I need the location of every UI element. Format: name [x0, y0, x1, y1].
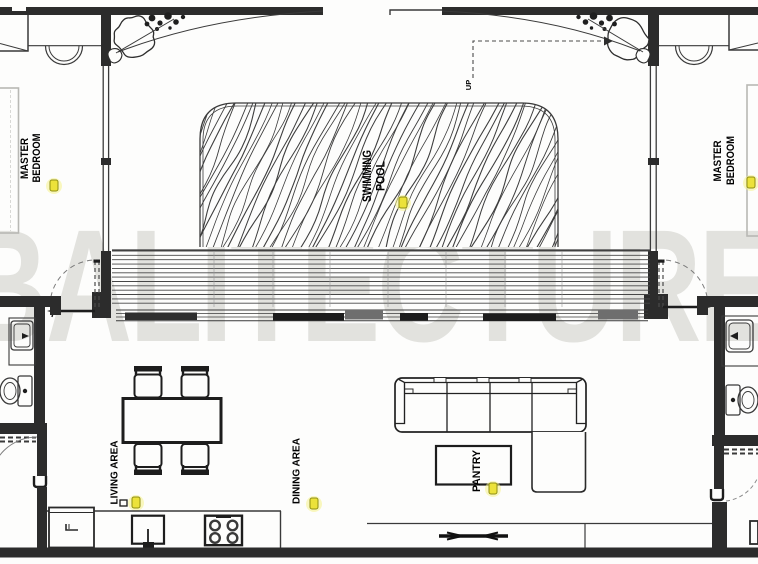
svg-text:PANTRY: PANTRY [471, 449, 483, 492]
svg-text:UP: UP [464, 80, 473, 90]
svg-text:POOL: POOL [376, 161, 388, 191]
svg-text:MASTER: MASTER [712, 140, 724, 181]
svg-text:SWIMMING: SWIMMING [362, 150, 374, 202]
svg-text:BEDROOM: BEDROOM [31, 134, 43, 183]
svg-text:BEDROOM: BEDROOM [725, 136, 737, 185]
svg-text:LIVING AREA: LIVING AREA [109, 440, 121, 504]
svg-text:MASTER: MASTER [19, 138, 31, 179]
svg-text:DINING AREA: DINING AREA [291, 438, 303, 504]
